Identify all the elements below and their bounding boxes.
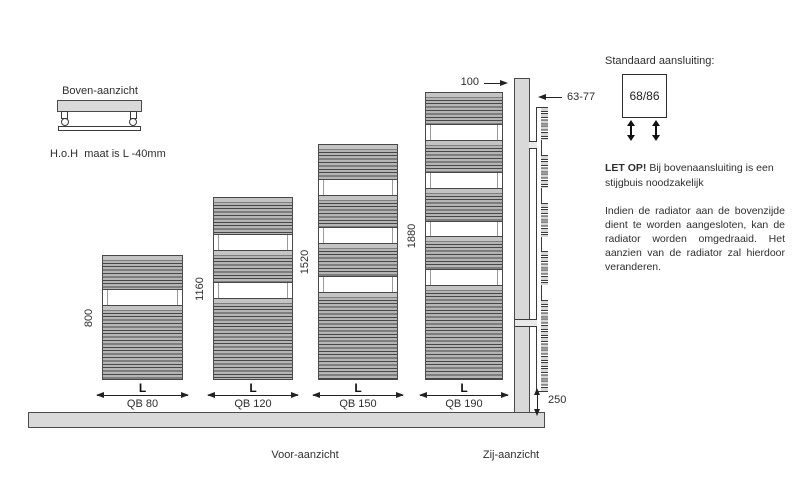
radiator-qb-80 bbox=[102, 255, 183, 380]
radiator-model-label: QB 190 bbox=[445, 398, 482, 410]
connection-size-box: 68/86 bbox=[622, 74, 667, 118]
radiator-tube-group bbox=[103, 255, 182, 290]
body-text: Indien de radiator aan de bovenzijde die… bbox=[605, 204, 785, 274]
side-view-upper-bracket bbox=[529, 141, 537, 149]
top-view-front-panel bbox=[58, 126, 141, 131]
side-view-tube-group bbox=[541, 300, 548, 392]
radiator-model-label: QB 120 bbox=[234, 398, 271, 410]
radiator-tube-group bbox=[214, 298, 292, 380]
radiator-tube-group bbox=[426, 140, 502, 173]
radiator-dimension-diagram: Boven-aanzicht H.o.H maat is L -40mm 100… bbox=[0, 0, 800, 487]
dim-63-77-label: 63-77 bbox=[567, 91, 595, 103]
radiator-width-arrow-icon bbox=[420, 395, 508, 396]
radiator-qb-120 bbox=[213, 197, 293, 380]
radiator-width-label: L bbox=[139, 381, 146, 395]
side-view-tube-group bbox=[541, 251, 548, 285]
floor bbox=[28, 412, 545, 428]
radiator-tube-group bbox=[426, 92, 502, 125]
wall bbox=[514, 78, 530, 413]
side-view-tube-group bbox=[541, 203, 548, 237]
radiator-qb-190 bbox=[425, 92, 503, 380]
hoh-note: H.o.H maat is L -40mm bbox=[50, 148, 166, 160]
side-view-lower-bracket bbox=[515, 319, 537, 327]
top-view-right-pipe-icon bbox=[129, 118, 137, 126]
radiator-tube-group bbox=[319, 195, 397, 228]
front-view-caption: Voor-aanzicht bbox=[271, 449, 338, 461]
radiator-model-label: QB 80 bbox=[127, 398, 158, 410]
dim-63-77-arrow-icon bbox=[545, 97, 562, 98]
connection-right-arrow-icon bbox=[655, 126, 657, 135]
radiator-width-label: L bbox=[249, 381, 256, 395]
radiator-height-label: 1520 bbox=[299, 250, 311, 274]
warning-bold: LET OP! bbox=[605, 162, 646, 174]
radiator-tube-group bbox=[426, 285, 502, 380]
connection-left-arrow-icon bbox=[630, 126, 632, 135]
radiator-tube-group bbox=[426, 188, 502, 222]
dim-250-label: 250 bbox=[548, 394, 566, 406]
connection-size-label: 68/86 bbox=[629, 89, 659, 103]
radiator-height-label: 1880 bbox=[406, 224, 418, 248]
dim-250-arrow-icon bbox=[537, 394, 538, 410]
radiator-tube-group bbox=[214, 250, 292, 283]
radiator-tube-group bbox=[319, 243, 397, 277]
warning-text: LET OP! Bij bovenaansluiting is een stij… bbox=[605, 161, 785, 191]
side-view-tube-group bbox=[541, 155, 548, 188]
radiator-tube-group bbox=[426, 236, 502, 270]
radiator-tube-group bbox=[214, 197, 292, 235]
panel-title: Standaard aansluiting: bbox=[605, 55, 714, 67]
side-view-caption: Zij-aanzicht bbox=[483, 449, 539, 461]
top-view-title: Boven-aanzicht bbox=[62, 85, 138, 97]
radiator-width-arrow-icon bbox=[208, 395, 298, 396]
radiator-qb-150 bbox=[318, 144, 398, 380]
radiator-tube-group bbox=[319, 144, 397, 180]
radiator-model-label: QB 150 bbox=[339, 398, 376, 410]
radiator-width-arrow-icon bbox=[97, 395, 188, 396]
radiator-height-label: 1160 bbox=[194, 277, 206, 301]
radiator-width-arrow-icon bbox=[313, 395, 403, 396]
top-view-left-pipe-icon bbox=[61, 118, 69, 126]
radiator-tube-group bbox=[103, 305, 182, 380]
radiator-width-label: L bbox=[460, 381, 467, 395]
radiator-height-label: 800 bbox=[83, 308, 95, 326]
radiator-tube-group bbox=[319, 292, 397, 380]
radiator-width-label: L bbox=[354, 381, 361, 395]
dim-100-label: 100 bbox=[445, 76, 479, 88]
side-view-tube-group bbox=[541, 107, 548, 140]
dim-100-arrow-icon bbox=[484, 83, 501, 84]
